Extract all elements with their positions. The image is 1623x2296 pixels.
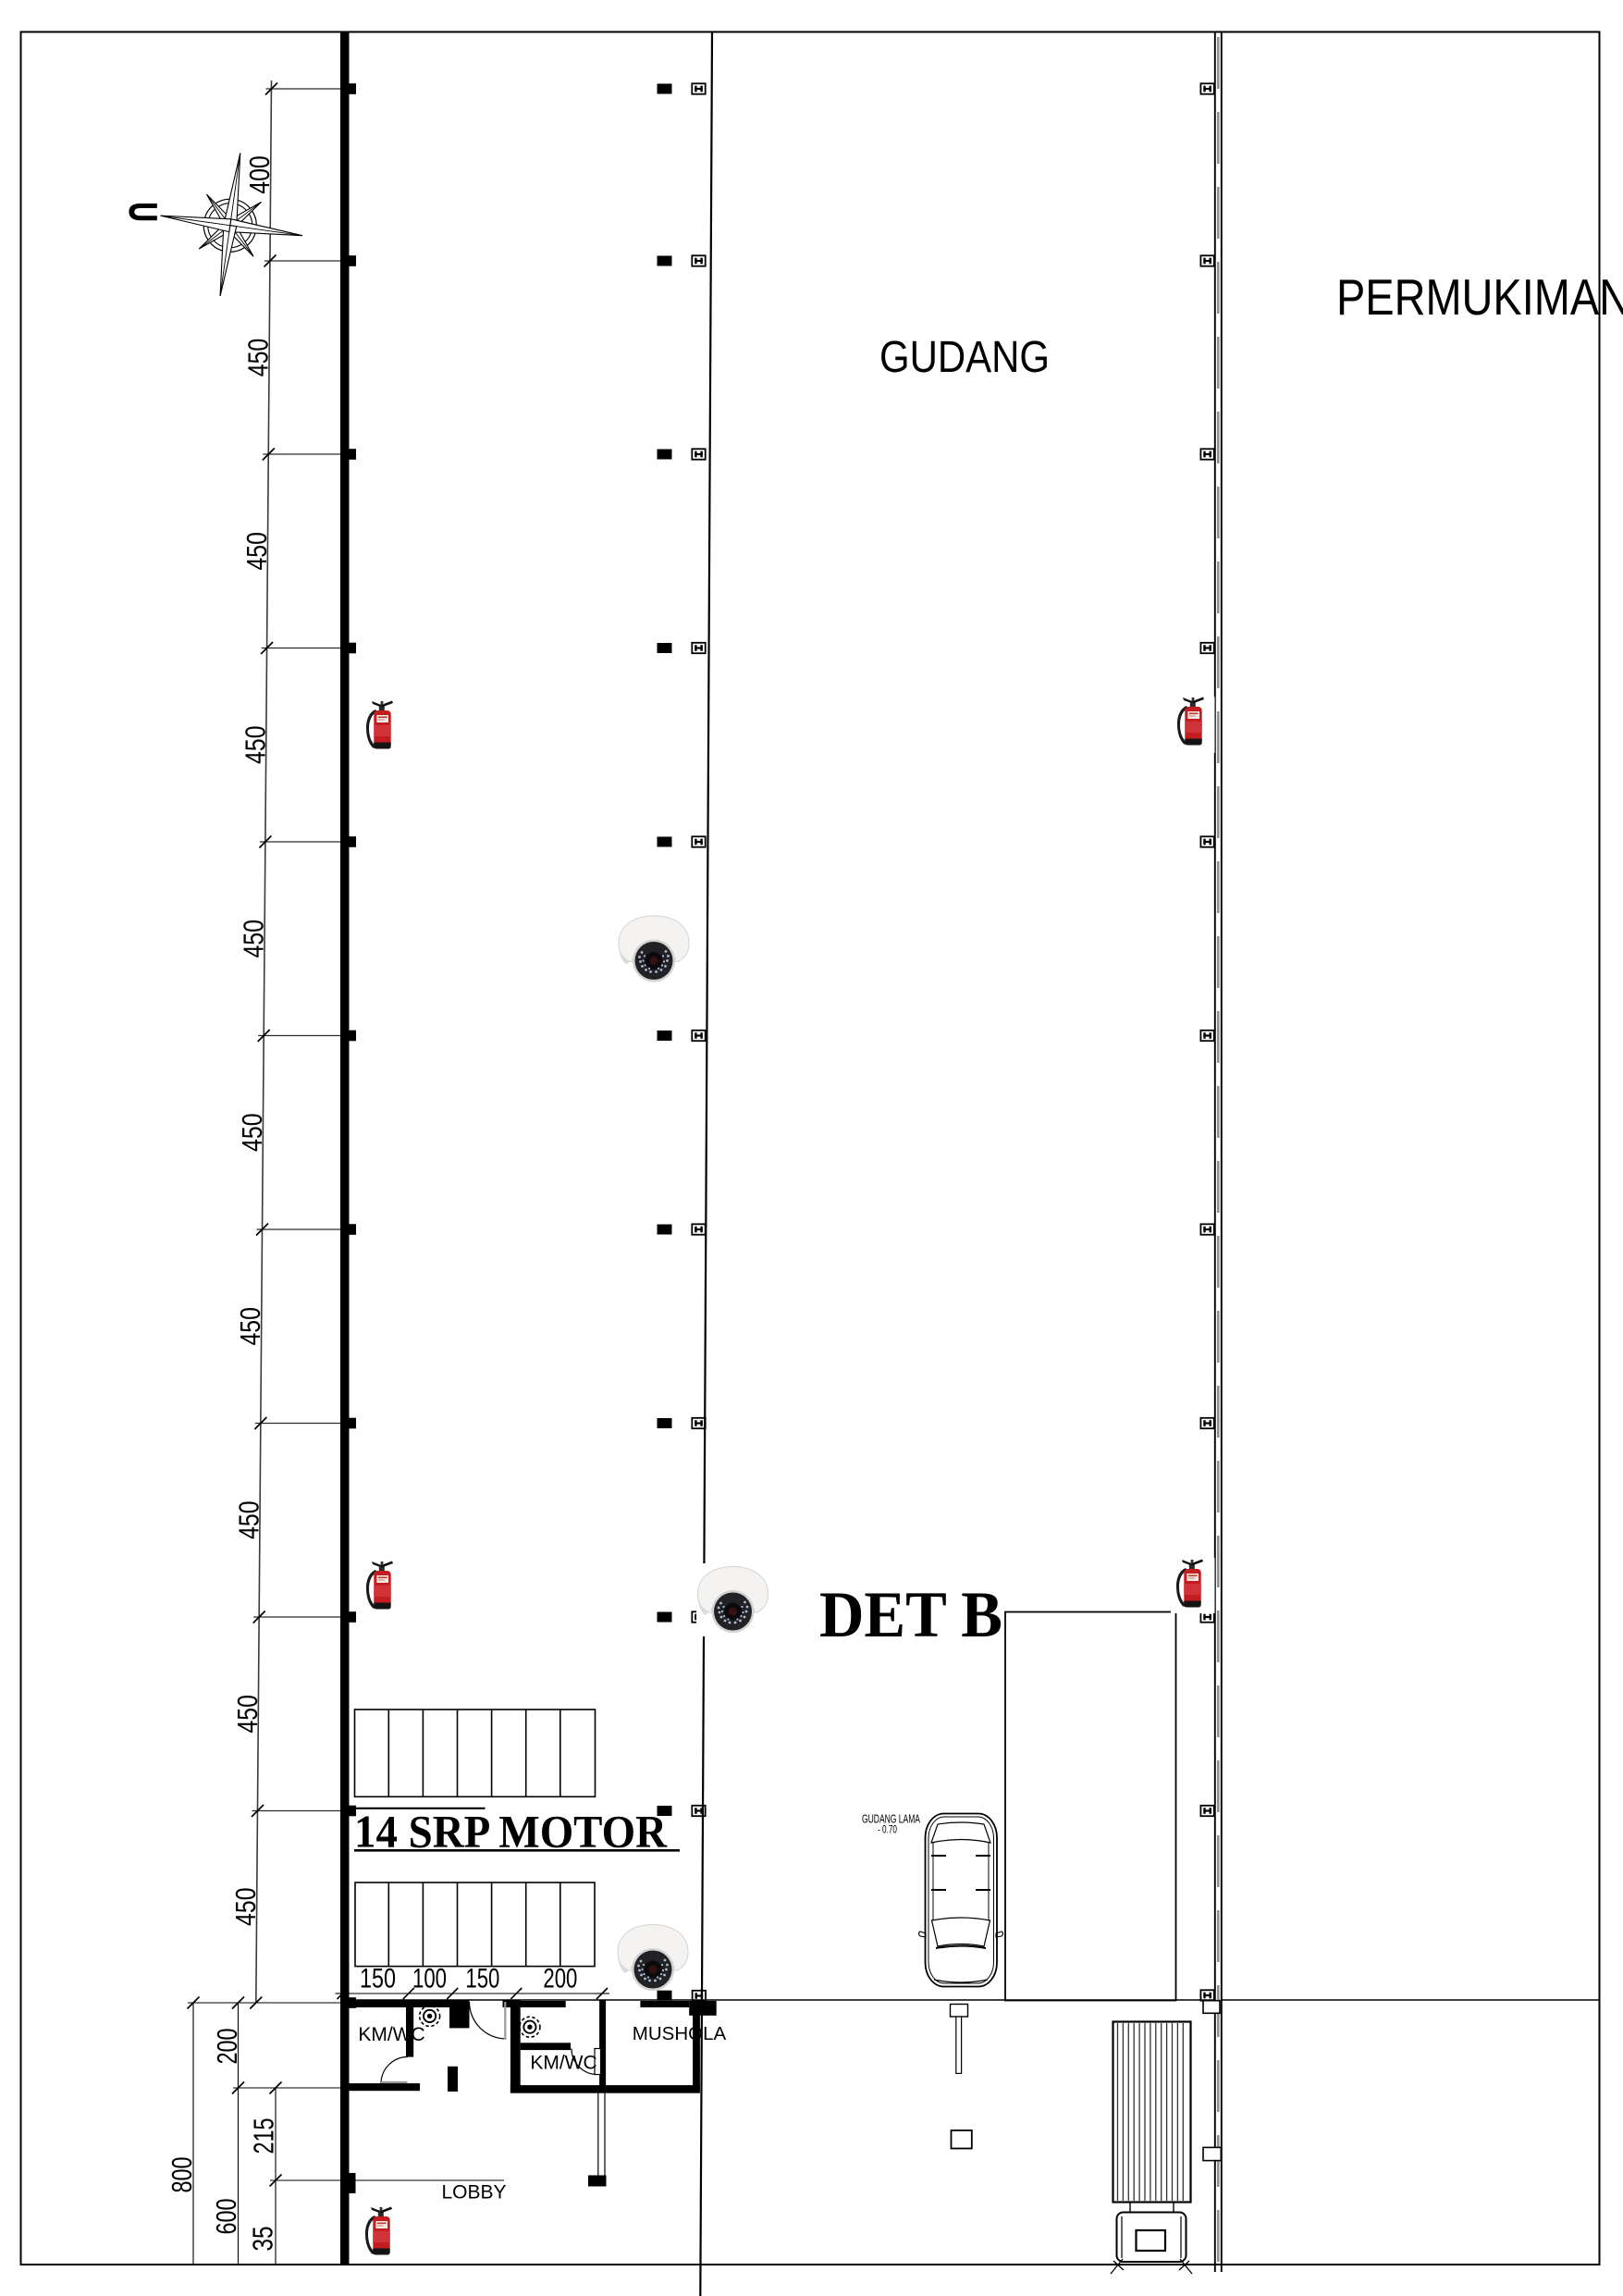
svg-text:450: 450 [232,1695,264,1734]
svg-text:150: 150 [465,1964,499,1994]
svg-text:GUDANG: GUDANG [879,333,1050,382]
svg-text:450: 450 [240,725,271,764]
svg-text:100: 100 [412,1964,447,1994]
svg-text:KM/WC: KM/WC [530,2053,596,2074]
svg-text:DET B: DET B [819,1579,1002,1651]
svg-text:400: 400 [244,155,276,194]
svg-text:KM/WC: KM/WC [358,2024,424,2045]
svg-text:450: 450 [234,1500,265,1539]
svg-text:450: 450 [243,339,275,377]
svg-text:- 0.70: - 0.70 [878,1823,897,1836]
svg-text:450: 450 [230,1887,262,1926]
svg-text:450: 450 [239,920,270,958]
svg-text:35: 35 [247,2227,279,2252]
svg-text:LOBBY: LOBBY [441,2182,506,2203]
svg-text:600: 600 [210,2199,242,2235]
svg-text:U: U [122,203,166,222]
svg-text:215: 215 [248,2118,280,2154]
svg-text:800: 800 [166,2157,198,2193]
svg-text:PERMUKIMAN: PERMUKIMAN [1336,268,1623,326]
svg-text:450: 450 [237,1113,268,1152]
svg-text:200: 200 [211,2029,243,2065]
svg-text:MUSHOLA: MUSHOLA [633,2023,727,2044]
svg-text:450: 450 [235,1307,266,1346]
svg-text:450: 450 [241,532,273,571]
svg-text:150: 150 [360,1964,396,1994]
svg-text:200: 200 [543,1964,577,1994]
